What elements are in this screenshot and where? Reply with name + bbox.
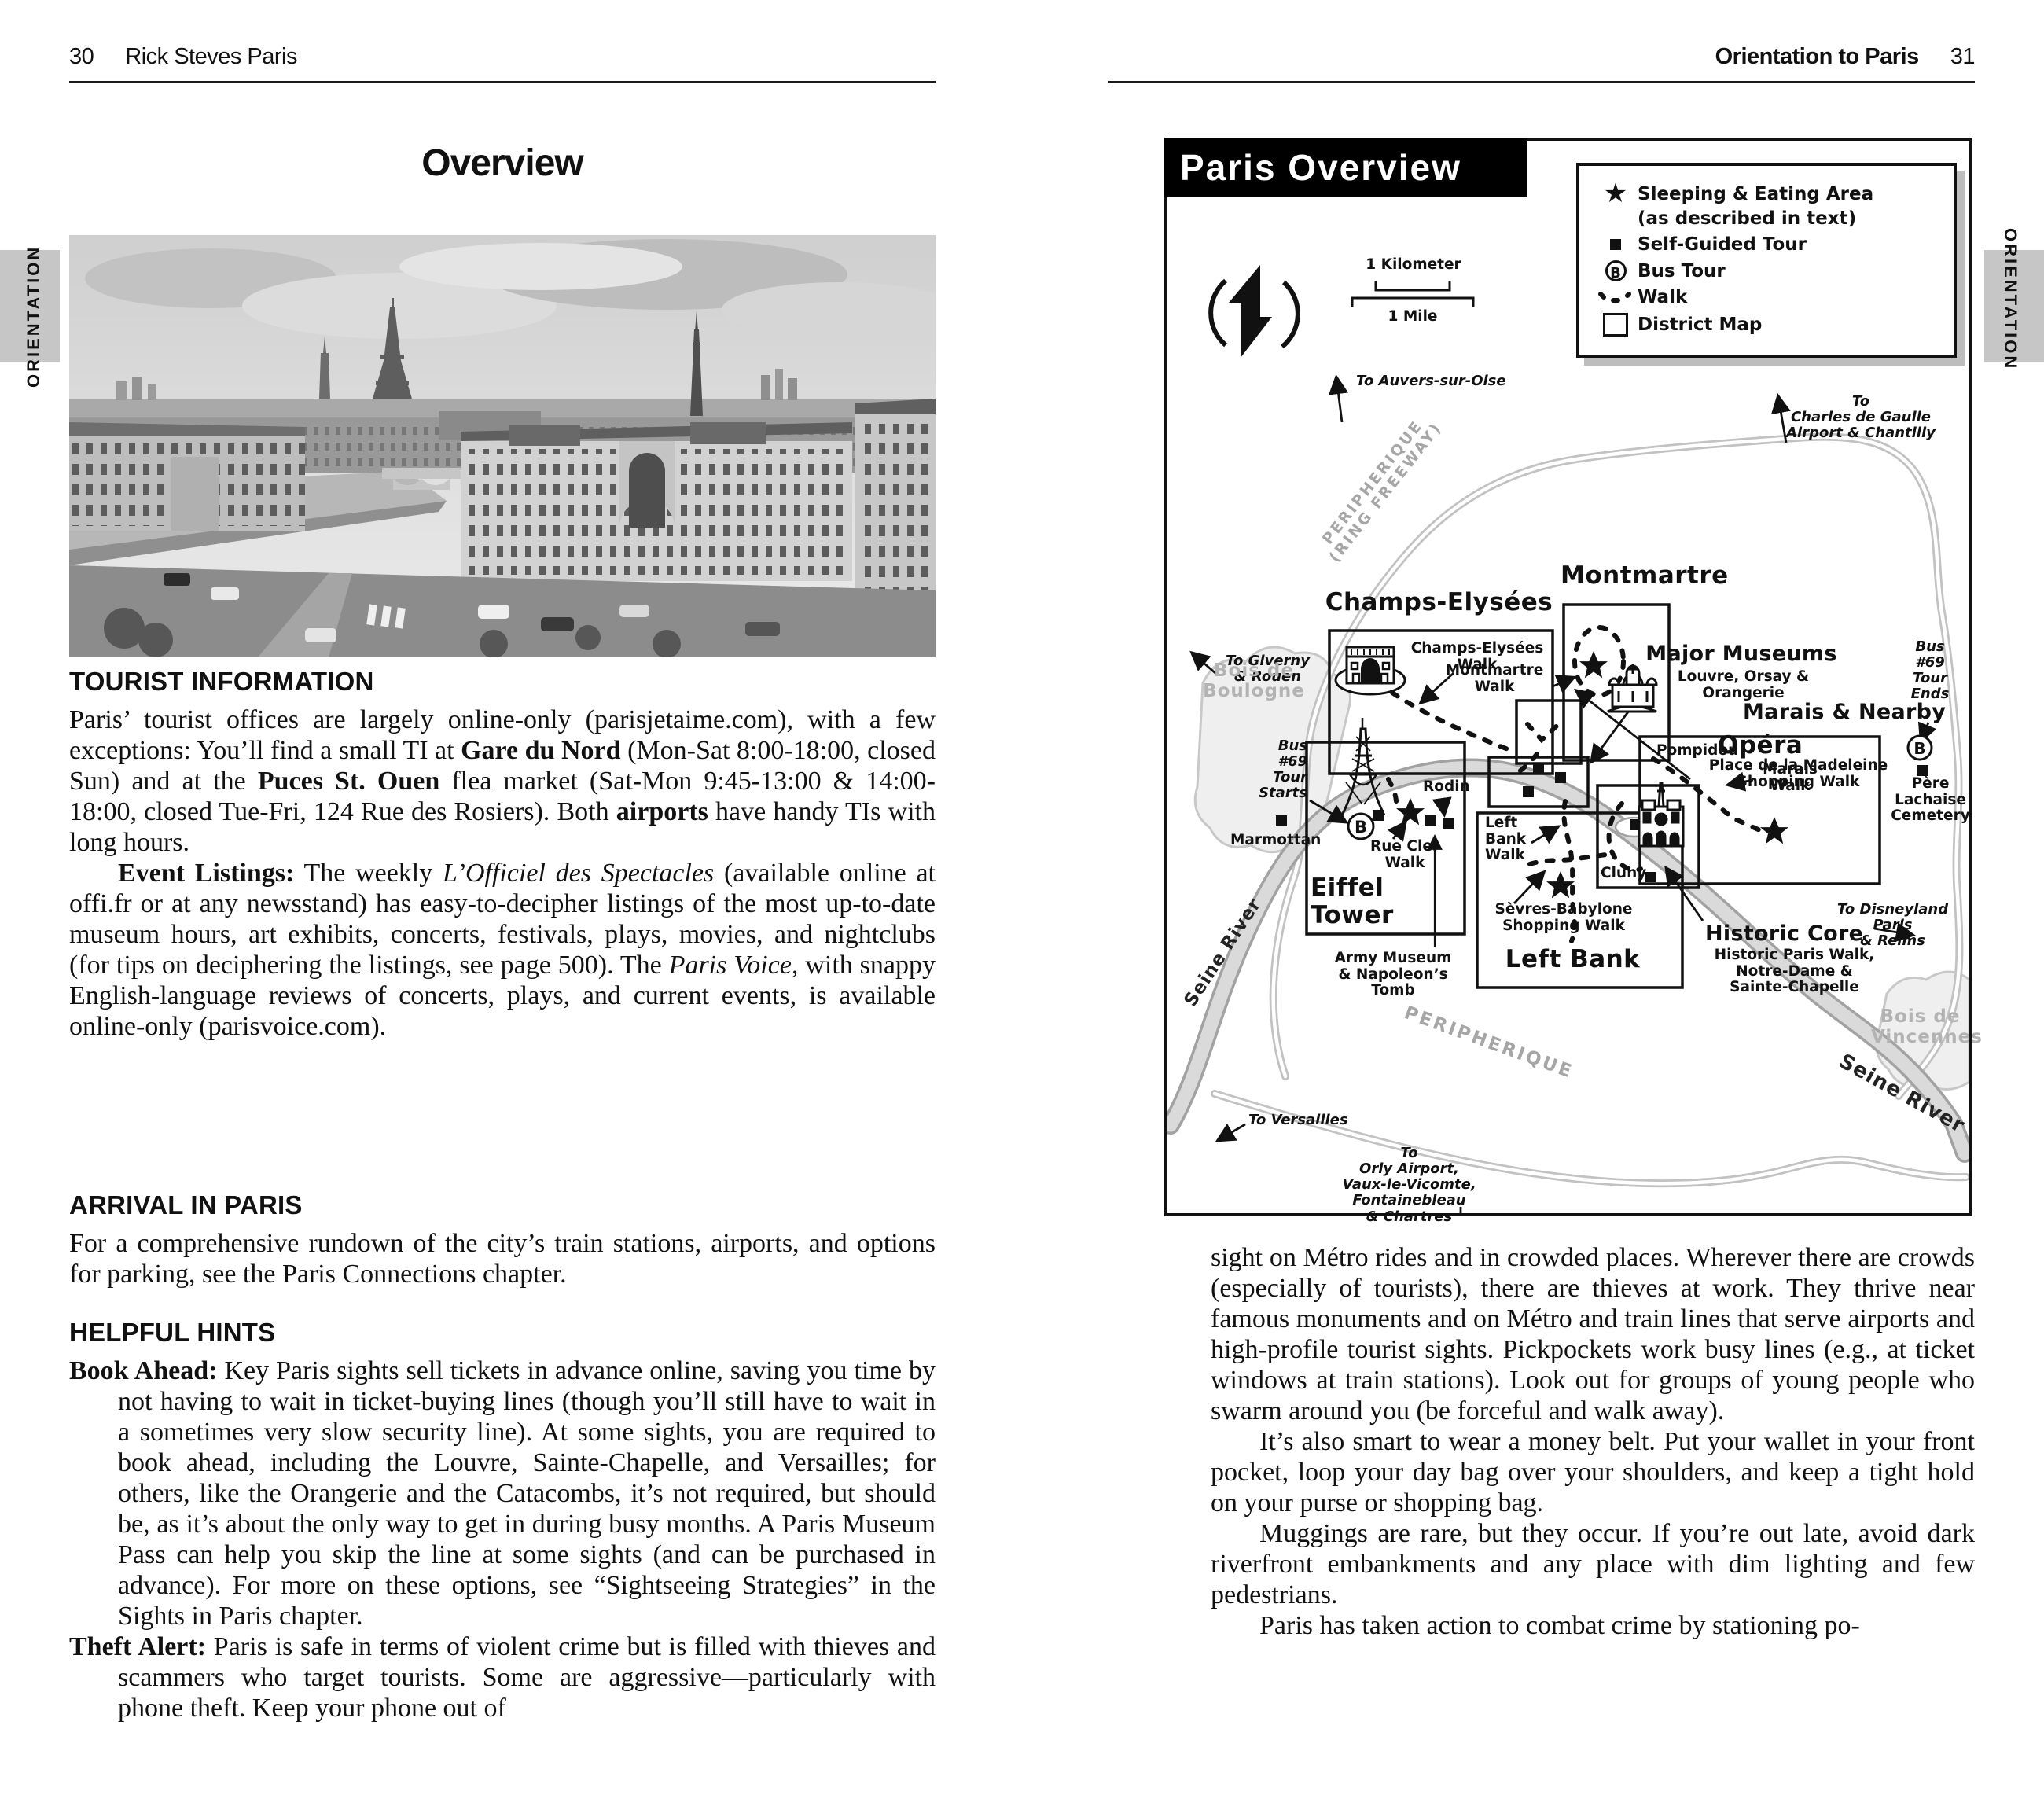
square-icon [1594,239,1638,250]
left-orientation-tab: ORIENTATION [24,223,44,388]
sevres-babylone-label: Sèvres-Babylone Shopping Walk [1485,902,1642,934]
tourist-info-para2: Event Listings: The weekly L’Officiel de… [69,858,936,1042]
rodin-label: Rodin [1423,779,1470,796]
hints-book-ahead: Book Ahead: Key Paris sights sell ticket… [69,1355,936,1631]
to-auvers-label: To Auvers-sur-Oise [1356,373,1506,389]
right-page-number: 31 [1950,44,1975,70]
right-para2: It’s also smart to wear a money belt. Pu… [1211,1426,1975,1518]
hints-heading: HELPFUL HINTS [69,1318,936,1348]
overview-title: Overview [69,142,936,185]
scale-km-label: 1 Kilometer [1366,257,1461,274]
legend-selfguided-label: Self-Guided Tour [1638,234,1807,255]
historic-core-label: Historic Core [1705,922,1863,946]
opera-walk-path [1527,721,1562,740]
bus-circle-icon: B [1594,260,1638,281]
eiffel-tower-label: Eiffel Tower [1311,874,1394,929]
right-orientation-tab: ORIENTATION [2000,228,2020,393]
major-museums-sub-label: Louvre, Orsay & Orangerie [1639,669,1847,701]
marais-nearby-label: Marais & Nearby [1743,701,1946,724]
left-bank-walk-label: Left Bank Walk [1485,815,1526,864]
hints-text: Book Ahead: Key Paris sights sell ticket… [69,1355,936,1723]
scale-bars [1352,281,1473,307]
to-orly-label: To Orly Airport, Vaux-le-Vicomte, Fontai… [1325,1146,1494,1225]
map-title: Paris Overview [1164,138,1527,197]
tourist-info-heading: TOURIST INFORMATION [69,667,936,697]
walk-dots-icon [1594,289,1638,305]
marmottan-label: Marmottan [1230,833,1321,849]
photo-right-building [855,399,936,595]
historic-core-sub-label: Historic Paris Walk, Notre-Dame & Sainte… [1710,947,1879,996]
legend-district-row: District Map [1594,313,1946,337]
legend-walk-row: Walk [1594,287,1946,307]
arrival-heading: ARRIVAL IN PARIS [69,1190,936,1220]
north-arrow-icon [1211,265,1298,358]
champs-walk-label: Champs-Elysées Walk [1403,641,1551,673]
bois-boulogne-label: Bois de Boulogne [1195,661,1313,702]
montmartre-label: Montmartre [1561,562,1729,590]
left-running-title: Rick Steves Paris [125,44,297,70]
tourist-info-para1: Paris’ tourist offices are largely onlin… [69,704,936,858]
opera-walk-district-box [1516,701,1581,763]
photo-main-building [461,422,852,581]
legend-sleeping-row: ★ Sleeping & Eating Area [1594,182,1946,206]
svg-text:B: B [1913,739,1925,758]
district-box-icon [1594,313,1638,337]
to-cdg-label: To Charles de Gaulle Airport & Chantilly [1782,394,1939,441]
bus69-starts-label: Bus #69 Tour Starts [1244,738,1307,802]
paris-cityscape-photo [69,235,936,657]
legend-sleeping-label: Sleeping & Eating Area [1638,184,1873,204]
arrival-para1: For a comprehensive rundown of the city’… [69,1228,936,1289]
champs-elysees-label: Champs-Elysées [1323,589,1555,616]
major-museums-label: Major Museums [1616,642,1867,666]
left-running-head: 30 Rick Steves Paris [69,44,936,83]
right-para1: sight on Métro rides and in crowded plac… [1211,1242,1975,1426]
left-bank-label: Left Bank [1488,946,1657,973]
tourist-info-text: Paris’ tourist offices are largely onlin… [69,704,936,1042]
legend-selfguided-row: Self-Guided Tour [1594,234,1946,255]
paris-overview-map: B B [1164,138,1972,1216]
marais-walk-label: Marais Walk [1755,762,1825,794]
cluny-label: Cluny [1601,866,1646,882]
legend-district-label: District Map [1638,314,1762,335]
legend-sleeping-sub: (as described in text) [1638,208,1946,229]
right-para3: Muggings are rare, but they occur. If yo… [1211,1518,1975,1610]
right-running-head: Orientation to Paris 31 [1108,44,1975,83]
bus69-ends-label: Bus #69 Tour Ends [1899,639,1961,703]
rue-cler-walk-label: Rue Cler Walk [1355,839,1455,871]
to-versailles-label: To Versailles [1248,1113,1348,1128]
legend-bus-row: B Bus Tour [1594,260,1946,281]
army-museum-label: Army Museum & Napoleon’s Tomb [1326,951,1460,999]
pere-lachaise-label: Père Lachaise Cemetery [1881,776,1980,825]
hints-theft-alert: Theft Alert: Paris is safe in terms of v… [69,1631,936,1723]
right-body-text: sight on Métro rides and in crowded plac… [1211,1242,1975,1641]
map-legend: ★ Sleeping & Eating Area (as described i… [1576,163,1957,358]
arc-de-triomphe-icon [1336,647,1405,694]
legend-bus-label: Bus Tour [1638,261,1726,281]
book-spread: { "page_left": { "header": {"page_number… [0,0,2044,1817]
scale-mile-label: 1 Mile [1381,309,1444,326]
notre-dame-icon [1639,783,1683,846]
svg-text:B: B [1355,818,1367,837]
legend-walk-label: Walk [1638,287,1687,307]
star-icon: ★ [1594,182,1638,206]
arrival-text: For a comprehensive rundown of the city’… [69,1228,936,1289]
right-running-title: Orientation to Paris [1715,44,1919,70]
left-page-number: 30 [69,44,94,70]
pompidou-label: Pompidou [1656,743,1738,760]
bois-vincennes-label: Bois de Vincennes [1871,1007,1969,1048]
right-para4: Paris has taken action to combat crime b… [1211,1610,1975,1641]
